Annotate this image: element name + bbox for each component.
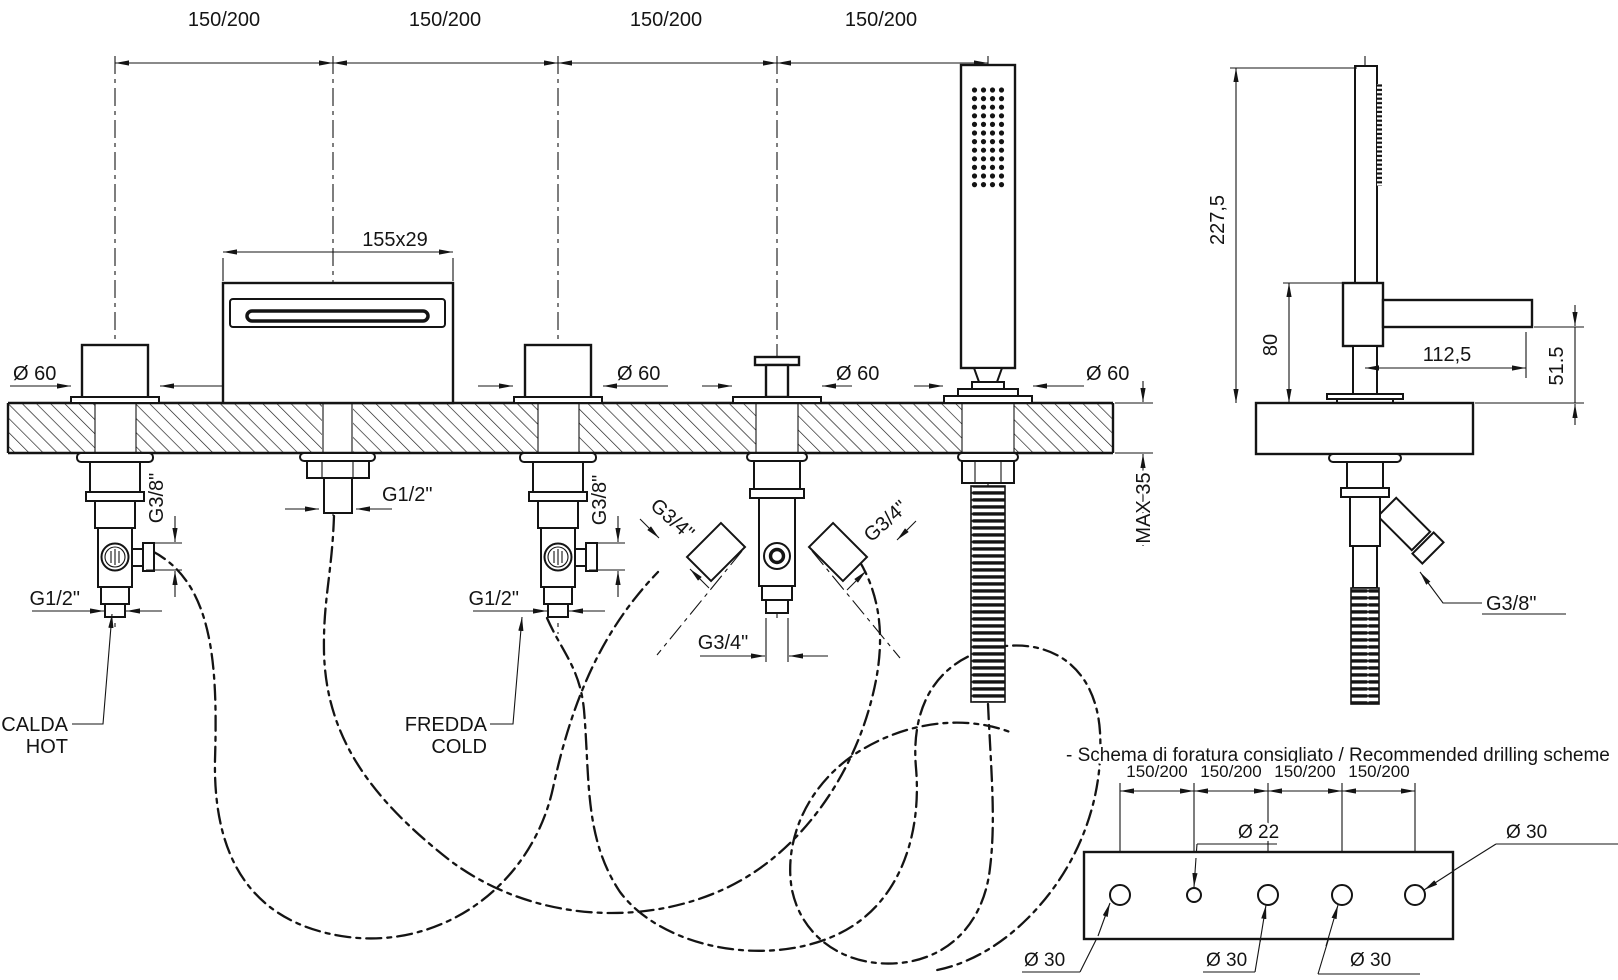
drilling-scheme: - Schema di foratura consigliato / Recom… bbox=[1022, 745, 1618, 974]
deck-thickness-label: MAX 35 bbox=[1133, 472, 1155, 543]
pitch-dim-3: 150/200 bbox=[630, 9, 702, 31]
drill-pitch-4: 150/200 bbox=[1348, 762, 1409, 781]
dia60-diverter: Ø 60 bbox=[836, 363, 879, 385]
handshower bbox=[944, 65, 1032, 702]
diverter bbox=[687, 357, 867, 613]
flex-hoses bbox=[152, 516, 1100, 971]
side-hose-coil bbox=[1351, 588, 1379, 704]
cold-bottom-thread-label: G1/2" bbox=[469, 588, 519, 610]
side-handshower-shaft bbox=[1355, 66, 1377, 283]
hole-dia-label-5: Ø 30 bbox=[1506, 822, 1547, 843]
pitch-dim-4: 150/200 bbox=[845, 9, 917, 31]
side-deck bbox=[1256, 403, 1473, 454]
drill-hole-5 bbox=[1405, 885, 1425, 905]
diverter-knob-stem bbox=[766, 365, 788, 397]
cold-label-it: FREDDA bbox=[405, 714, 488, 736]
diverter-bottom-thread-label: G3/4" bbox=[698, 632, 748, 654]
drill-hole-4 bbox=[1332, 885, 1352, 905]
cold-label-en: COLD bbox=[431, 736, 487, 758]
diverter-right-thread-label: G3/4" bbox=[860, 496, 912, 546]
faucet-installation-drawing: 150/200 150/200 150/200 150/200 155x29 Ø… bbox=[0, 0, 1618, 980]
spout-dim-label: 155x29 bbox=[362, 229, 428, 251]
drill-hole-1 bbox=[1110, 885, 1130, 905]
side-view: 227,5 80 112,5 51.5 G3/8" bbox=[1207, 56, 1584, 704]
diverter-knob-cap bbox=[755, 357, 799, 365]
deck-thickness-dimension: MAX 35 bbox=[1115, 381, 1155, 546]
spout-dimension: 155x29 bbox=[223, 229, 453, 281]
dia60-hot: Ø 60 bbox=[13, 363, 56, 385]
side-hose-thread-label: G3/8" bbox=[1486, 593, 1536, 615]
drill-pitch-1: 150/200 bbox=[1126, 762, 1187, 781]
spout-slot bbox=[247, 311, 428, 321]
drill-pitch-3: 150/200 bbox=[1274, 762, 1335, 781]
side-handshower-grip bbox=[1377, 84, 1382, 186]
cold-side-thread-label: G3/8" bbox=[589, 475, 611, 525]
side-holder-block bbox=[1343, 283, 1383, 346]
hole-dia-label-4: Ø 30 bbox=[1350, 950, 1391, 971]
hot-side-thread-label: G3/8" bbox=[146, 473, 168, 523]
waterfall-spout bbox=[223, 283, 453, 513]
pitch-dim-2: 150/200 bbox=[409, 9, 481, 31]
total-height-label: 227,5 bbox=[1207, 195, 1229, 245]
spout-thread-label: G1/2" bbox=[382, 484, 432, 506]
drill-hole-2 bbox=[1187, 888, 1201, 902]
hot-label-en: HOT bbox=[26, 736, 68, 758]
front-view: 150/200 150/200 150/200 150/200 155x29 Ø… bbox=[1, 9, 1155, 971]
drill-hole-3 bbox=[1258, 885, 1278, 905]
cold-valve-dimensions: G3/8" G1/2" FREDDA COLD bbox=[405, 475, 625, 758]
drill-pitch-2: 150/200 bbox=[1200, 762, 1261, 781]
pitch-dim-1: 150/200 bbox=[188, 9, 260, 31]
spout-drop-label: 51.5 bbox=[1546, 347, 1568, 386]
hot-label-it: CALDA bbox=[1, 714, 68, 736]
hole-dia-label-3: Ø 30 bbox=[1206, 950, 1247, 971]
dia60-cold: Ø 60 bbox=[617, 363, 660, 385]
side-spout bbox=[1383, 300, 1532, 327]
body-height-label: 80 bbox=[1260, 334, 1282, 356]
handshower-head bbox=[961, 65, 1015, 368]
tub-deck bbox=[8, 403, 1113, 453]
diverter-left-port bbox=[687, 523, 745, 581]
hot-valve-dimensions: G3/8" G1/2" CALDA HOT bbox=[1, 473, 182, 758]
spout-thread-dimension: G1/2" bbox=[285, 484, 432, 509]
side-below-deck-valve bbox=[1329, 454, 1444, 704]
dia60-handshower: Ø 60 bbox=[1086, 363, 1129, 385]
hole-dia-label-2: Ø 22 bbox=[1238, 822, 1279, 843]
top-pitch-dimensions: 150/200 150/200 150/200 150/200 bbox=[115, 9, 988, 63]
spout-reach-label: 112,5 bbox=[1423, 344, 1472, 366]
handshower-hose-coil bbox=[971, 486, 1005, 702]
diverter-left-thread-label: G3/4" bbox=[646, 494, 698, 544]
diverter-right-port bbox=[809, 523, 867, 581]
hole-dia-label-1: Ø 30 bbox=[1024, 950, 1065, 971]
technical-drawing-page: 150/200 150/200 150/200 150/200 155x29 Ø… bbox=[0, 0, 1618, 980]
hot-bottom-thread-label: G1/2" bbox=[30, 588, 80, 610]
